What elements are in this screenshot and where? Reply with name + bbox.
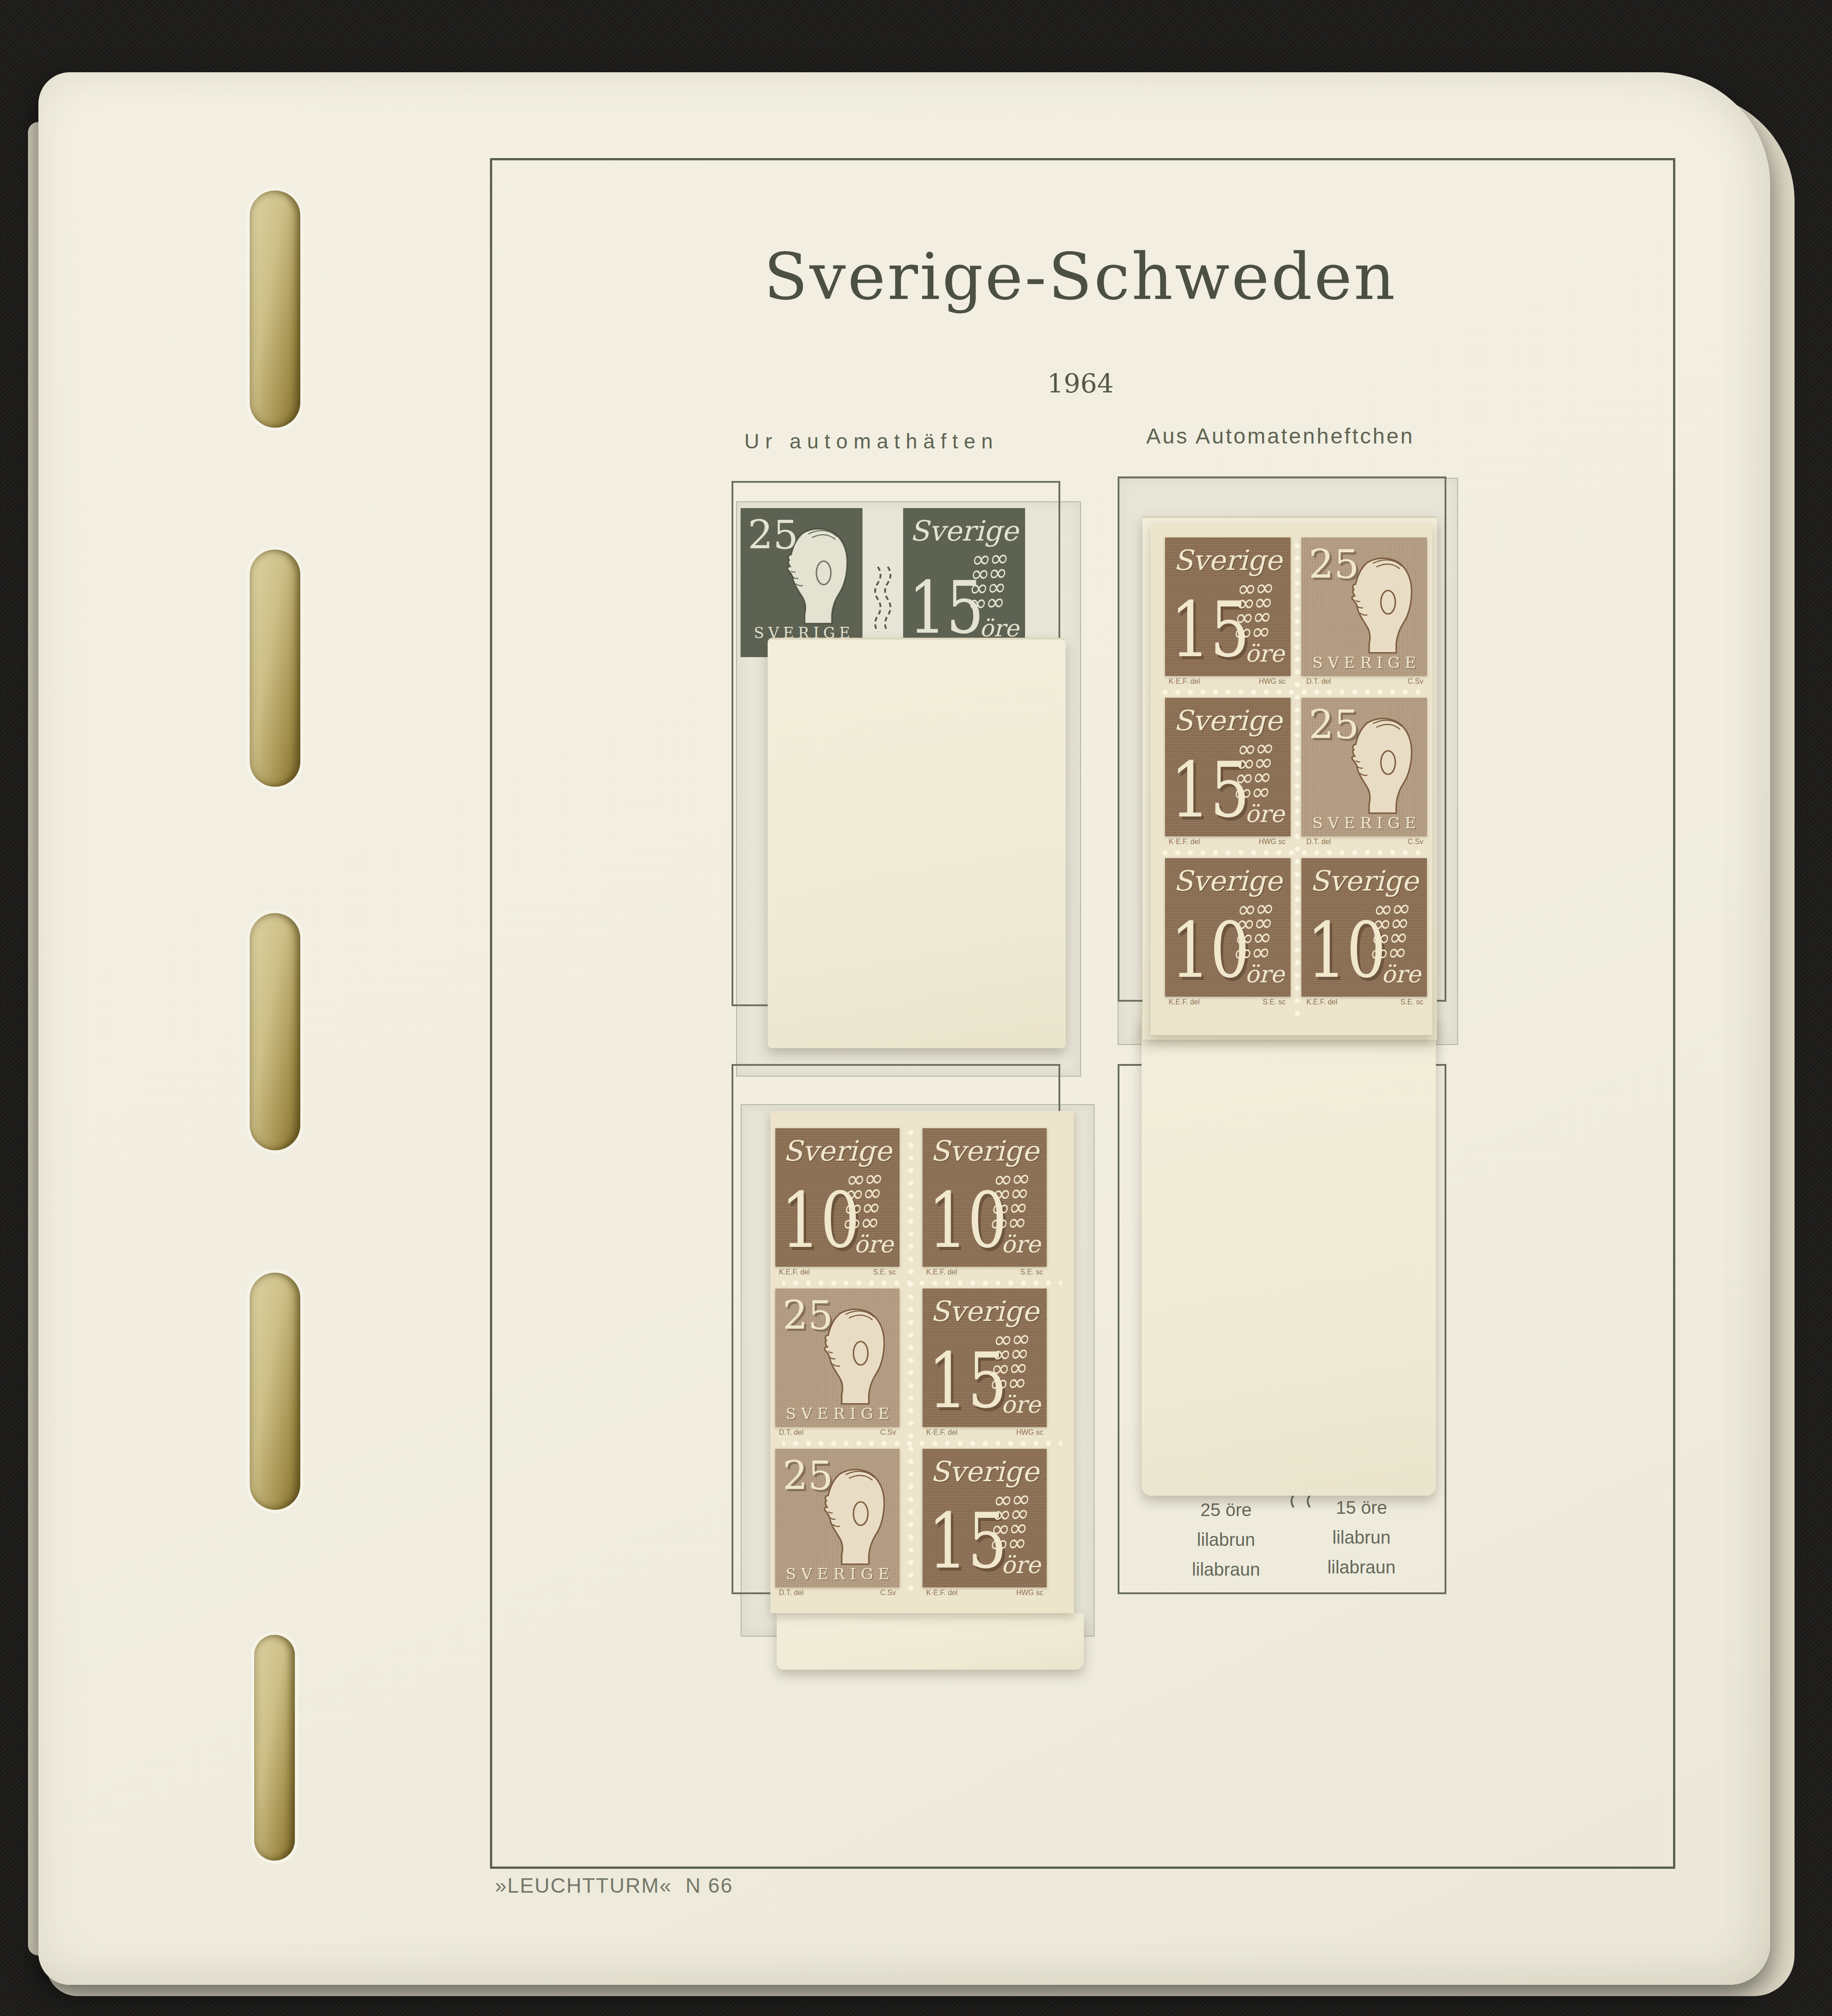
knot-ornament-icon: ∞∞∞∞∞∞∞∞ (1353, 900, 1426, 961)
stamp-15-ore: Sverige15∞∞∞∞∞∞∞∞öre (923, 1449, 1047, 1587)
stamp-credits: K·E.F. delHWG sc (923, 1428, 1047, 1437)
stamp-designer-credit: D.T. del (779, 1428, 803, 1437)
binder-hole (250, 191, 300, 428)
king-profile-icon (809, 1461, 900, 1568)
stamp-engraver-credit: S.E. sc (1400, 998, 1423, 1006)
page-number: N 66 (685, 1874, 733, 1897)
blank-booklet-cover (1142, 1016, 1436, 1496)
pane-row: 25 SVERIGESverige15∞∞∞∞∞∞∞∞öre (770, 1449, 1074, 1587)
stamp-designer-credit: K·E.F. del (926, 1428, 957, 1437)
stamp-country-script-label: Sverige (1301, 864, 1427, 897)
binder-hole (250, 550, 300, 787)
stamp-country-script-label: Sverige (1165, 544, 1291, 577)
left-column-header: Ur automathäften (686, 429, 1057, 453)
stamp-engraver-credit: S.E. sc (1020, 1268, 1043, 1276)
stamp-engraver-credit: HWG sc (1016, 1428, 1043, 1437)
stamp-currency-label: öre (1381, 961, 1421, 988)
stamp-engraver-credit: S.E. sc (873, 1268, 896, 1276)
stamp-credits: K·E.F. delHWG sc (1165, 838, 1289, 846)
pane-row: Sverige10∞∞∞∞∞∞∞∞öreSverige10∞∞∞∞∞∞∞∞öre (770, 1128, 1074, 1267)
booklet-pane-right: Sverige15∞∞∞∞∞∞∞∞öre25 SVERIGEK·E.F. del… (1151, 524, 1432, 1035)
stamp-engraver-credit: C.Sv (1408, 838, 1423, 846)
stamp-credits: K.E.F. delS.E. sc (775, 1268, 900, 1276)
stamp-credits: K.E.F. delS.E. sc (1303, 998, 1427, 1006)
engraver-credits-row: D.T. delC.SvK·E.F. delHWG sc (770, 1587, 1074, 1598)
stamp-25-ore: 25 SVERIGE (1301, 698, 1427, 836)
stamp-designer-credit: D.T. del (779, 1589, 803, 1597)
stamp-10-ore: Sverige10∞∞∞∞∞∞∞∞öre (1165, 858, 1291, 997)
stamp-designer-credit: K·E.F. del (1169, 838, 1200, 846)
perforation-row (1162, 847, 1421, 858)
publisher-imprint: »LEUCHTTURM«N 66 (495, 1873, 746, 1898)
stamp-designer-credit: K·E.F. del (1169, 677, 1200, 686)
stamp-engraver-credit: HWG sc (1259, 677, 1286, 686)
binder-hole (250, 1273, 300, 1510)
stamp-credits: K.E.F. delS.E. sc (923, 1268, 1047, 1276)
binder-hole (250, 913, 300, 1150)
stamp-country-script-label: Sverige (923, 1455, 1047, 1488)
stamp-currency-label: öre (1001, 1231, 1040, 1258)
stamp-country-label: SVERIGE (1301, 653, 1427, 672)
stamp-country-label: SVERIGE (775, 1565, 900, 1583)
year-label: 1964 (490, 368, 1671, 399)
pane-row: 25 SVERIGESverige15∞∞∞∞∞∞∞∞öre (770, 1288, 1074, 1427)
stamp-engraver-credit: C.Sv (880, 1428, 896, 1437)
knot-ornament-icon: ∞∞∞∞∞∞∞∞ (973, 1330, 1046, 1392)
stamp-designer-credit: K.E.F. del (1169, 998, 1199, 1006)
stamp-credits: K·E.F. delHWG sc (1165, 677, 1289, 686)
knot-ornament-icon: ∞∞∞∞∞∞∞∞ (1217, 579, 1290, 641)
stamp-country-script-label: Sverige (1165, 704, 1291, 737)
stamp-currency-label: öre (1245, 961, 1284, 988)
king-profile-icon (809, 1301, 900, 1407)
stamp-15-ore: Sverige15∞∞∞∞∞∞∞∞öre (923, 1288, 1047, 1427)
stamp-designer-credit: K.E.F. del (779, 1268, 810, 1276)
perforation-row (782, 1278, 1062, 1288)
booklet-pane-left: Sverige10∞∞∞∞∞∞∞∞öreSverige10∞∞∞∞∞∞∞∞öre… (770, 1111, 1074, 1613)
photo-of-stamp-album-page: Sverige-Schweden 1964 Ur automathäften A… (0, 0, 1832, 2016)
perforation-row (1162, 687, 1421, 698)
stamp-country-label: SVERIGE (1301, 814, 1427, 832)
stamp-currency-label: öre (1001, 1551, 1040, 1578)
stamp-25-ore: 25 SVERIGE (775, 1449, 900, 1587)
stamp-currency-label: öre (1245, 800, 1284, 827)
stamp-designer-credit: D.T. del (1306, 677, 1331, 686)
engraver-credits-row: D.T. delC.SvK·E.F. delHWG sc (770, 1427, 1074, 1438)
stamp-country-script-label: Sverige (923, 1134, 1047, 1167)
stamp-credits: D.T. delC.Sv (1303, 677, 1427, 686)
stamp-15-ore: Sverige15∞∞∞∞∞∞∞∞öre (1165, 537, 1291, 676)
engraver-credits-row: K.E.F. delS.E. scK.E.F. delS.E. sc (1151, 997, 1432, 1008)
right-column-header: Aus Automatenheftchen (1118, 424, 1443, 448)
engraver-credits-row: K.E.F. delS.E. scK.E.F. delS.E. sc (770, 1267, 1074, 1278)
knot-ornament-icon: ∞∞∞∞∞∞∞∞ (973, 1170, 1046, 1232)
king-profile-icon (1337, 550, 1427, 656)
pane-row: Sverige15∞∞∞∞∞∞∞∞öre25 SVERIGE (1151, 537, 1432, 676)
stamp-currency-label: öre (1001, 1391, 1040, 1418)
stamp-currency-label: öre (1245, 640, 1284, 667)
stamp-credits: D.T. delC.Sv (775, 1589, 900, 1597)
stamp-credits: K.E.F. delS.E. sc (1165, 998, 1289, 1006)
publisher-mark: »LEUCHTTURM« (495, 1874, 672, 1897)
stamp-10-ore: Sverige10∞∞∞∞∞∞∞∞öre (775, 1128, 900, 1267)
knot-ornament-icon: ∞∞∞∞∞∞∞∞ (1217, 900, 1290, 961)
stamp-designer-credit: K·E.F. del (926, 1589, 957, 1597)
page-title: Sverige-Schweden (490, 245, 1671, 309)
stamp-designer-credit: D.T. del (1306, 838, 1331, 846)
engraver-credits-row: K·E.F. delHWG scD.T. delC.Sv (1151, 836, 1432, 847)
stamp-country-label: SVERIGE (775, 1405, 900, 1423)
pane-row: Sverige15∞∞∞∞∞∞∞∞öre25 SVERIGE (1151, 698, 1432, 836)
booklet-cover-edge (777, 1613, 1084, 1670)
stamp-designer-credit: K.E.F. del (926, 1268, 957, 1276)
stamp-10-ore: Sverige10∞∞∞∞∞∞∞∞öre (1301, 858, 1427, 997)
stamp-10-ore: Sverige10∞∞∞∞∞∞∞∞öre (923, 1128, 1047, 1267)
perforation-row (782, 1438, 1062, 1449)
stamp-25-ore: 25 SVERIGE (775, 1288, 900, 1427)
king-profile-icon (1337, 710, 1427, 817)
stamp-country-script-label: Sverige (923, 1295, 1047, 1328)
knot-ornament-icon: ∞∞∞∞∞∞∞∞ (973, 1490, 1046, 1552)
engraver-credits-row: K·E.F. delHWG scD.T. delC.Sv (1151, 676, 1432, 687)
stamp-country-script-label: Sverige (775, 1134, 900, 1167)
stamp-designer-credit: K.E.F. del (1306, 998, 1337, 1006)
stamp-engraver-credit: C.Sv (1408, 677, 1423, 686)
knot-ornament-icon: ∞∞∞∞∞∞∞∞ (1217, 739, 1290, 801)
album-page: Sverige-Schweden 1964 Ur automathäften A… (38, 72, 1770, 1985)
stamp-15-ore: Sverige15∞∞∞∞∞∞∞∞öre (1165, 698, 1291, 836)
stamp-engraver-credit: S.E. sc (1263, 998, 1286, 1006)
stamp-engraver-credit: C.Sv (880, 1589, 896, 1597)
stamp-engraver-credit: HWG sc (1259, 838, 1286, 846)
binder-hole (254, 1635, 295, 1861)
pane-row: Sverige10∞∞∞∞∞∞∞∞öreSverige10∞∞∞∞∞∞∞∞öre (1151, 858, 1432, 997)
stamp-engraver-credit: HWG sc (1016, 1589, 1043, 1597)
knot-ornament-icon: ∞∞∞∞∞∞∞∞ (825, 1170, 899, 1232)
blank-booklet-cover (768, 638, 1066, 1048)
stamp-currency-label: öre (854, 1231, 893, 1258)
stamp-credits: K·E.F. delHWG sc (923, 1589, 1047, 1597)
stamp-country-script-label: Sverige (1165, 864, 1291, 897)
stamp-25-ore: 25 SVERIGE (1301, 537, 1427, 676)
stamp-credits: D.T. delC.Sv (775, 1428, 900, 1437)
stamp-credits: D.T. delC.Sv (1303, 838, 1427, 846)
